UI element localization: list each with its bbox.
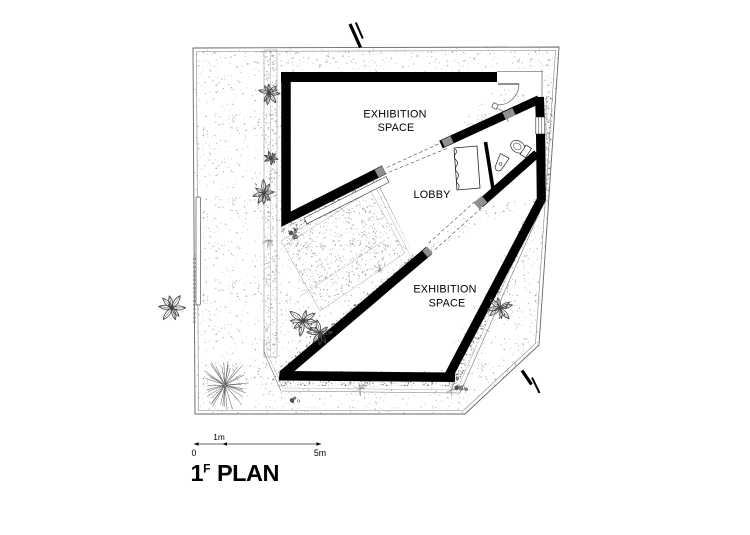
svg-text:EXHIBITION: EXHIBITION xyxy=(363,109,426,121)
svg-text:EXHIBITION: EXHIBITION xyxy=(413,284,476,296)
svg-text:0: 0 xyxy=(192,448,197,458)
svg-text:LOBBY: LOBBY xyxy=(413,189,450,201)
svg-text:SPACE: SPACE xyxy=(429,298,466,310)
svg-text:1F PLAN: 1F PLAN xyxy=(191,460,279,486)
svg-text:SPACE: SPACE xyxy=(378,122,415,134)
svg-text:5m: 5m xyxy=(314,448,326,458)
svg-text:1m: 1m xyxy=(213,432,225,442)
